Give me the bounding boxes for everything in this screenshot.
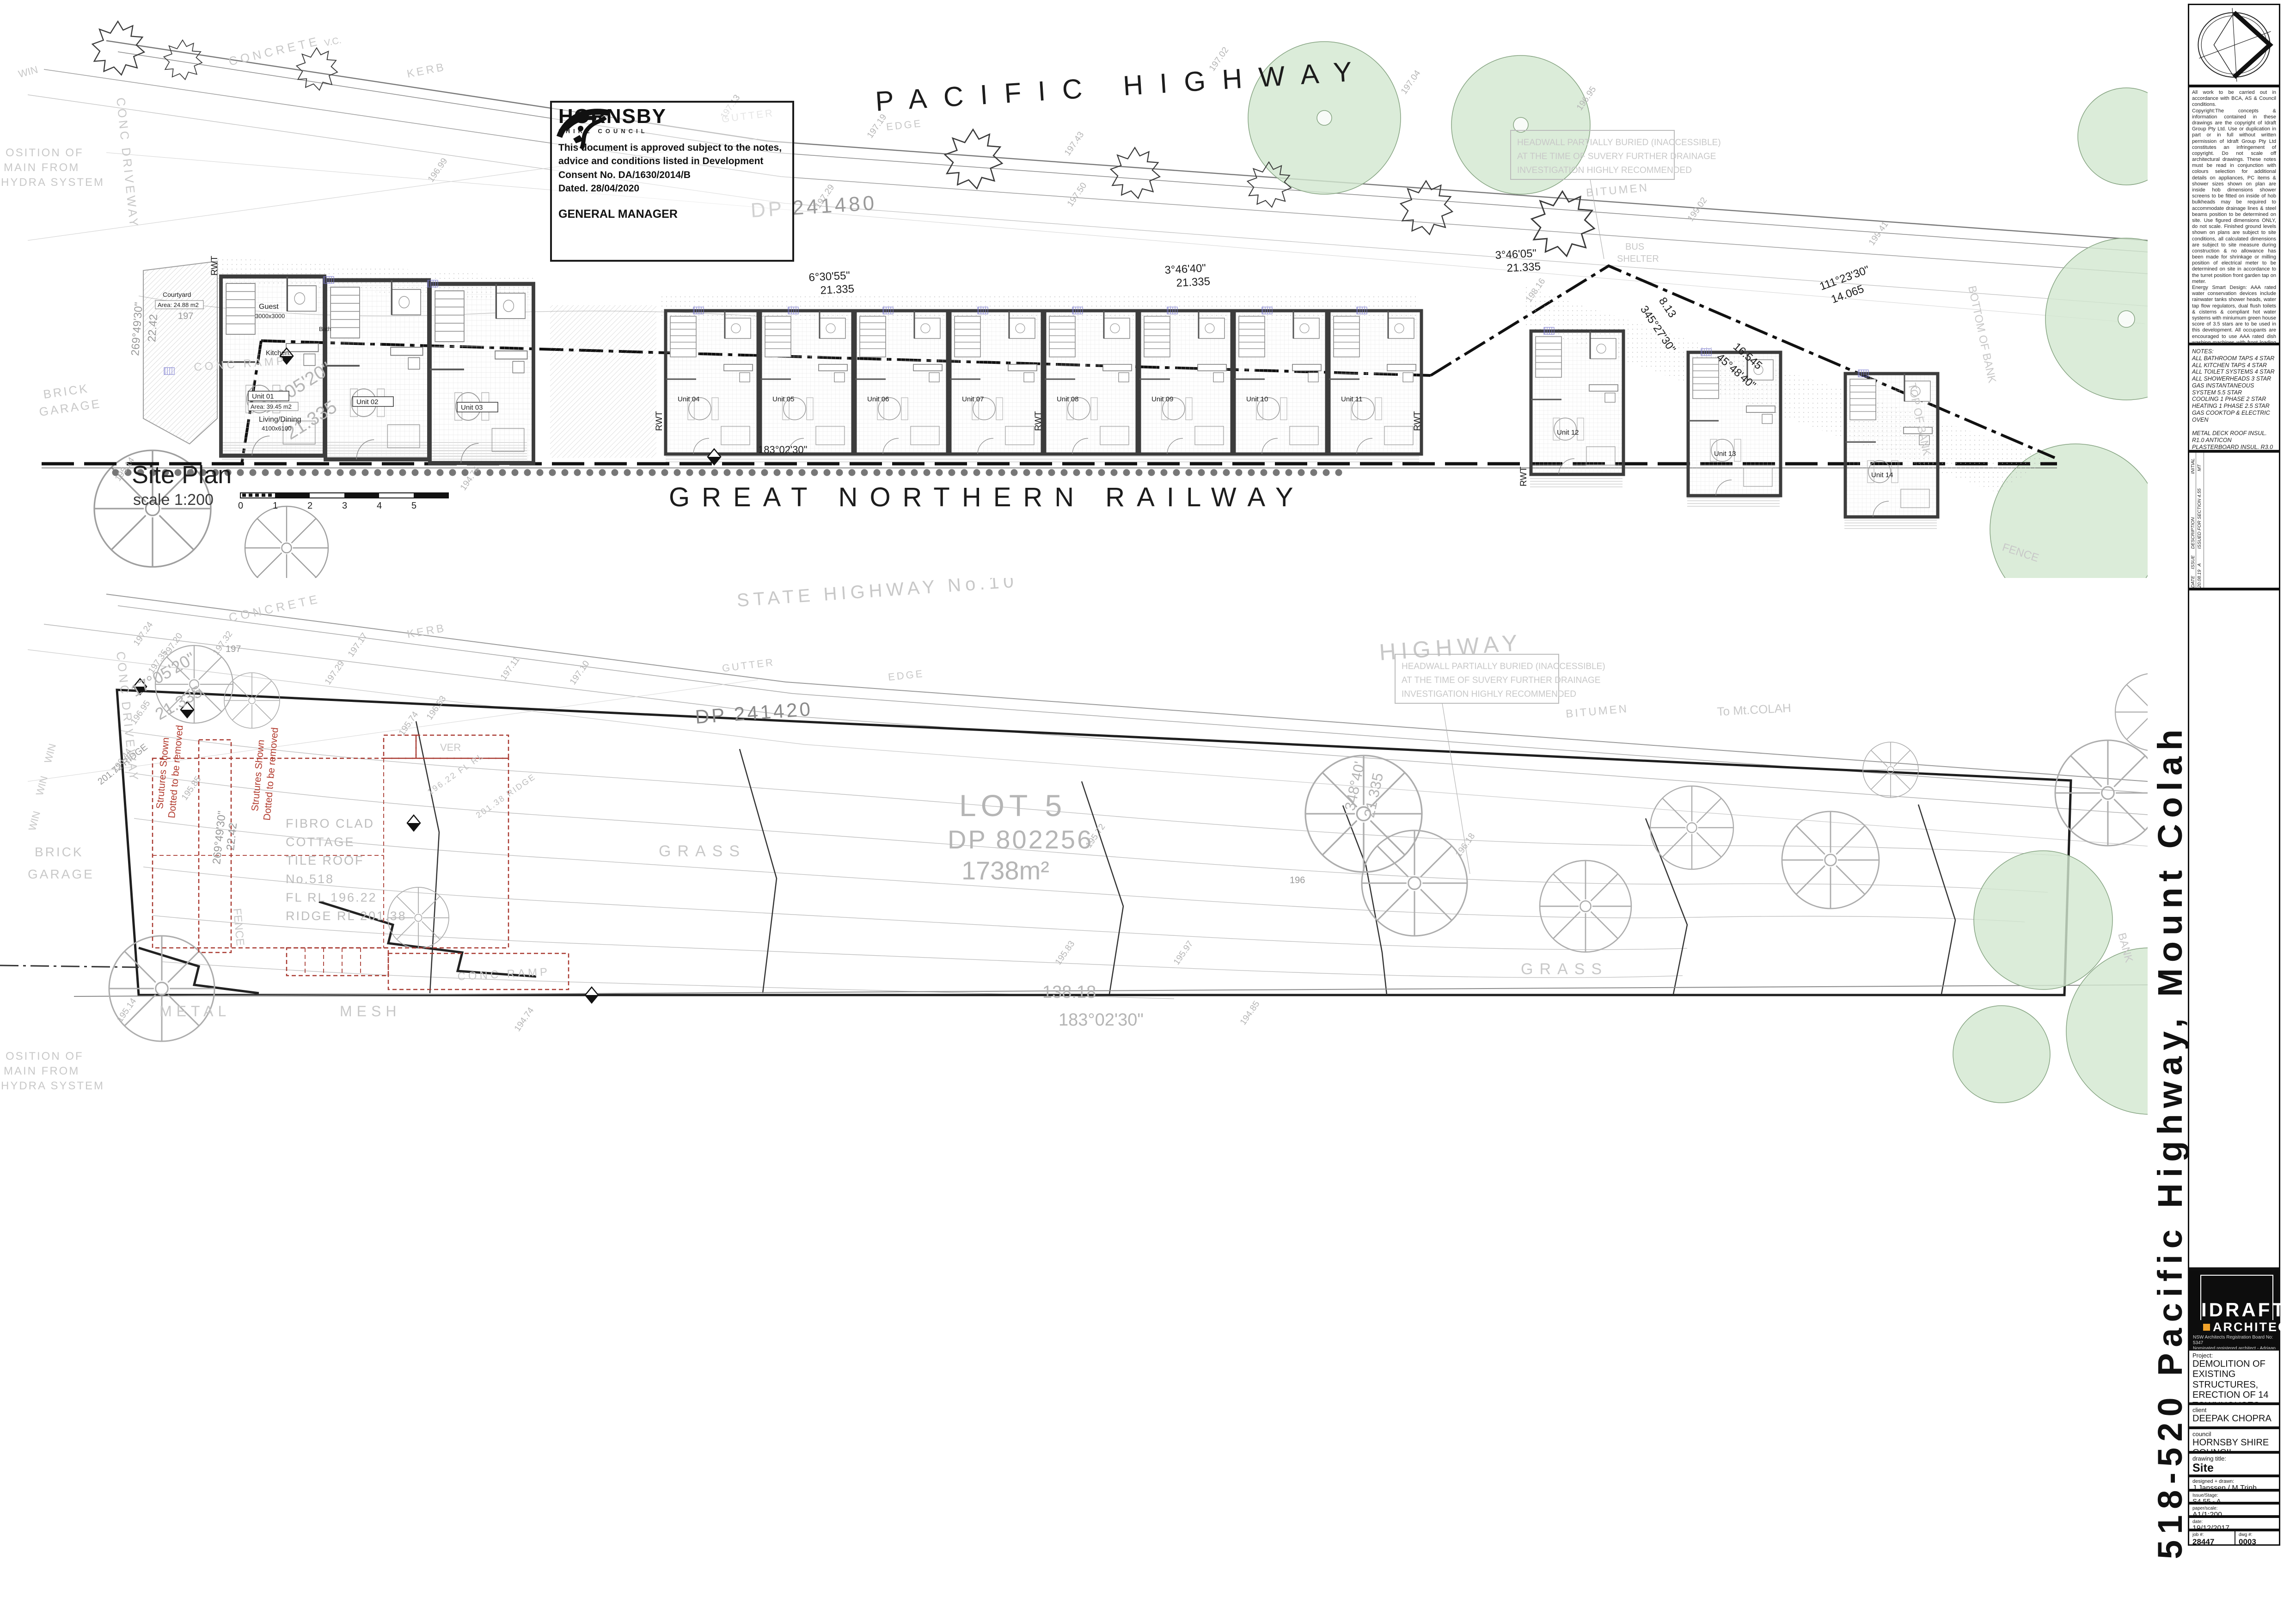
svg-text:183°02'30": 183°02'30" — [758, 444, 807, 455]
svg-text:Unit 14: Unit 14 — [1871, 471, 1893, 479]
svg-text:1: 1 — [273, 501, 278, 511]
svg-text:195.97: 195.97 — [1172, 939, 1195, 967]
svg-text:Courtyard: Courtyard — [163, 291, 191, 298]
rev-value-issue: A — [2197, 563, 2202, 566]
svg-text:INVESTIGATION HIGHLY RECOMMEND: INVESTIGATION HIGHLY RECOMMENDED — [1402, 689, 1576, 699]
svg-text:21.335: 21.335 — [1506, 260, 1541, 275]
svg-text:FIBRO CLAD: FIBRO CLAD — [286, 817, 374, 830]
field-label: dwg #: — [2239, 1532, 2276, 1537]
field-label: client — [2192, 1407, 2276, 1413]
field-job-dwg: job #: 28447 dwg #: 0003 — [2188, 1530, 2280, 1546]
svg-text:197.50: 197.50 — [1065, 181, 1089, 209]
svg-text:199.41: 199.41 — [1867, 220, 1891, 247]
svg-text:195.83: 195.83 — [1053, 939, 1077, 967]
field-label: paper/scale: — [2192, 1506, 2276, 1511]
svg-text:1738m²: 1738m² — [961, 856, 1049, 885]
stamp-signature: GENERAL MANAGER — [558, 208, 786, 221]
logo-square-icon — [2203, 1324, 2210, 1331]
svg-text:BOTTOM OF BANK: BOTTOM OF BANK — [1965, 285, 1998, 384]
firm-name: IDRAFT — [2201, 1299, 2286, 1321]
demolition-plan: STATE HIGHWAY No.10 HIGHWAY To Mt.COLAH … — [0, 578, 2148, 1137]
svg-text:Living/Dining: Living/Dining — [259, 416, 301, 424]
svg-text:3°46'05": 3°46'05" — [1495, 247, 1537, 262]
svg-text:194.85: 194.85 — [1238, 999, 1262, 1027]
svg-text:22.42: 22.42 — [146, 314, 160, 343]
headwall-note: HEADWALL PARTIALLY BURIED (INACCESSIBLE)… — [1395, 654, 1605, 874]
state-highway-label: STATE HIGHWAY No.10 — [736, 578, 1018, 611]
svg-text:2: 2 — [307, 501, 312, 511]
svg-text:197.43: 197.43 — [1063, 130, 1086, 158]
svg-text:BITUMEN: BITUMEN — [1586, 181, 1649, 199]
svg-text:RWT: RWT — [1519, 467, 1529, 486]
svg-text:Unit 01: Unit 01 — [252, 393, 274, 400]
svg-text:CONCRETE: CONCRETE — [227, 34, 321, 68]
plan-scale: scale 1:200 — [133, 491, 214, 509]
firm-name2: ARCHITECTS — [2213, 1320, 2296, 1334]
field-council: council HORNSBY SHIRE COUNCIL — [2188, 1428, 2280, 1452]
svg-text:OSITION OF: OSITION OF — [6, 1050, 84, 1063]
council-approval-stamp: HORNSBY SHIRE COUNCIL This document is a… — [550, 101, 794, 262]
field-value: DEEPAK CHOPRA — [2192, 1413, 2276, 1424]
ratings-notes-box: NOTES: ALL BATHROOM TAPS 4 STAR ALL KITC… — [2188, 344, 2280, 451]
field-dwg: dwg #: 0003 — [2235, 1531, 2279, 1544]
demolition-notes: Strutures Shown Dotted to be removed Str… — [154, 725, 281, 821]
svg-text:21.335: 21.335 — [152, 682, 206, 724]
to-colah-label: To Mt.COLAH — [1717, 701, 1792, 719]
rev-header-initial: INITIAL — [2191, 458, 2196, 474]
svg-text:TILE ROOF: TILE ROOF — [286, 854, 364, 867]
railway-title: GREAT NORTHERN RAILWAY — [669, 482, 1305, 512]
stamp-line: Consent No. DA/1630/2014/B — [558, 168, 786, 182]
svg-text:197.04: 197.04 — [1399, 68, 1423, 96]
svg-text:HYDRA SYSTEM: HYDRA SYSTEM — [1, 1080, 104, 1092]
section-markers — [134, 679, 598, 1003]
svg-text:21.335: 21.335 — [820, 283, 855, 297]
svg-text:Unit 05: Unit 05 — [772, 395, 795, 403]
svg-text:197.17: 197.17 — [346, 631, 370, 659]
svg-text:BRICK: BRICK — [43, 381, 90, 401]
svg-text:3°46'40": 3°46'40" — [1164, 262, 1206, 276]
svg-text:197.11: 197.11 — [499, 655, 522, 682]
svg-text:RWT: RWT — [1413, 411, 1422, 431]
svg-text:SHELTER: SHELTER — [1617, 254, 1659, 264]
svg-text:Unit 08: Unit 08 — [1057, 395, 1079, 403]
field-client: client DEEPAK CHOPRA — [2188, 1404, 2280, 1428]
stamp-line: Dated. 28/04/2020 — [558, 182, 786, 195]
road-lines — [28, 594, 2148, 846]
svg-text:FL RL 196.22: FL RL 196.22 — [286, 891, 377, 904]
svg-text:22.42: 22.42 — [224, 822, 239, 851]
rev-value-initial: MT — [2197, 465, 2202, 471]
svg-text:GRASS: GRASS — [1521, 960, 1608, 978]
contour-lines — [120, 731, 2062, 999]
sheet-address-vertical: 518-520 Pacific Highway, Mount Colah — [2150, 375, 2190, 1559]
svg-text:OSITION OF: OSITION OF — [6, 147, 84, 159]
field-scale: paper/scale: A1/1:200 — [2188, 1503, 2280, 1517]
svg-text:COTTAGE: COTTAGE — [286, 835, 355, 849]
field-label: drawing title: — [2192, 1455, 2276, 1462]
svg-text:RIDGE RL 201.38: RIDGE RL 201.38 — [286, 909, 407, 923]
svg-text:Unit 07: Unit 07 — [962, 395, 984, 403]
svg-text:197.24: 197.24 — [132, 620, 155, 648]
svg-text:196: 196 — [1290, 875, 1305, 885]
svg-text:KERB: KERB — [406, 621, 447, 640]
svg-text:VER: VER — [440, 742, 461, 753]
highway-label: HIGHWAY — [1378, 629, 1523, 665]
revision-divider — [2204, 453, 2204, 588]
svg-text:WIN: WIN — [42, 743, 58, 765]
general-notes-text: All work to be carried out in accordance… — [2189, 87, 2279, 354]
field-label: job #: — [2192, 1532, 2231, 1537]
svg-text:MAIN FROM: MAIN FROM — [4, 161, 80, 174]
svg-text:Guest: Guest — [259, 303, 279, 311]
north-arrow-icon — [2189, 5, 2279, 85]
svg-text:BUS: BUS — [1625, 242, 1644, 252]
svg-text:GRASS: GRASS — [659, 842, 746, 860]
svg-text:Kitchen.: Kitchen. — [266, 349, 291, 357]
cottage-text: FIBRO CLAD COTTAGE TILE ROOF No.518 FL R… — [286, 751, 538, 923]
svg-text:GUTTER: GUTTER — [722, 656, 776, 674]
svg-text:AT THE TIME OF SUVERY FURTHER: AT THE TIME OF SUVERY FURTHER DRAINAGE — [1402, 676, 1600, 685]
svg-text:Unit 09: Unit 09 — [1151, 395, 1174, 403]
svg-text:197.29: 197.29 — [323, 659, 347, 687]
svg-text:BRICK: BRICK — [35, 845, 84, 859]
north-arrow-box — [2188, 4, 2280, 86]
svg-text:GARAGE: GARAGE — [28, 867, 94, 881]
svg-text:21.335: 21.335 — [1176, 275, 1211, 289]
svg-text:FENCE: FENCE — [231, 908, 246, 946]
rev-header-description: DESCRIPTION — [2191, 517, 2196, 549]
svg-text:Area: 39.45 m2: Area: 39.45 m2 — [251, 403, 292, 410]
svg-text:MESH: MESH — [340, 1003, 401, 1020]
svg-text:LOT 5: LOT 5 — [959, 788, 1066, 823]
svg-text:197.10: 197.10 — [568, 659, 592, 687]
svg-text:METAL: METAL — [159, 1003, 231, 1020]
svg-text:WIN: WIN — [34, 775, 50, 797]
svg-text:EDGE: EDGE — [886, 117, 923, 133]
svg-text:Unit 12: Unit 12 — [1557, 429, 1579, 436]
rev-header-issue: ISSUE — [2191, 555, 2196, 569]
svg-text:195.14: 195.14 — [115, 996, 139, 1024]
svg-text:BITUMEN: BITUMEN — [1565, 702, 1629, 720]
general-notes-box: All work to be carried out in accordance… — [2188, 86, 2280, 344]
svg-text:DP 802256: DP 802256 — [948, 825, 1093, 854]
field-label: Project: — [2192, 1352, 2276, 1359]
svg-text:RWT: RWT — [1034, 411, 1043, 431]
scale-bar: 0 1 2 3 4 5 — [238, 493, 448, 511]
svg-text:3000x3000: 3000x3000 — [255, 313, 285, 319]
svg-text:AT THE TIME OF SUVERY FURTHER: AT THE TIME OF SUVERY FURTHER DRAINAGE — [1517, 152, 1716, 161]
revision-table: INITIAL MT DESCRIPTION ISSUED FOR SECTIO… — [2188, 451, 2280, 589]
svg-text:Unit 02: Unit 02 — [356, 398, 379, 406]
rev-value-date: 20.08.19 — [2197, 570, 2202, 588]
svg-text:197: 197 — [226, 644, 241, 654]
svg-text:WIN: WIN — [26, 810, 43, 832]
svg-text:HYDRA SYSTEM: HYDRA SYSTEM — [1, 176, 104, 189]
svg-text:CONC DRIVEWAY: CONC DRIVEWAY — [114, 97, 141, 229]
site-plan: PACIFIC HIGHWAY GREAT NORTHERN RAILWAY D… — [0, 0, 2148, 578]
field-drawing-title: drawing title: Site Plan/Demolition Plan — [2188, 1452, 2280, 1476]
svg-text:V.C.: V.C. — [324, 35, 343, 49]
svg-text:RWT: RWT — [210, 256, 220, 276]
revision-divider — [2196, 453, 2196, 588]
svg-text:MAIN FROM: MAIN FROM — [4, 1065, 80, 1077]
svg-text:Unit 10: Unit 10 — [1246, 395, 1268, 403]
svg-text:EDGE: EDGE — [888, 668, 925, 683]
svg-text:WIN: WIN — [17, 64, 39, 80]
svg-text:6°30'55": 6°30'55" — [808, 269, 851, 284]
svg-text:HEADWALL PARTIALLY BURIED (INA: HEADWALL PARTIALLY BURIED (INACCESSIBLE) — [1517, 138, 1721, 147]
svg-text:INVESTIGATION HIGHLY RECOMMEND: INVESTIGATION HIGHLY RECOMMENDED — [1517, 166, 1692, 175]
drawing-sheet: PACIFIC HIGHWAY GREAT NORTHERN RAILWAY D… — [0, 0, 2296, 1622]
rev-value-description: ISSUED FOR SECTION 4.55 — [2197, 488, 2202, 549]
plan-title: Site Plan — [132, 461, 232, 489]
svg-text:Unit 06: Unit 06 — [867, 395, 889, 403]
svg-text:Bath: Bath — [319, 326, 331, 332]
field-project: Project: DEMOLITION OF EXISTING STRUCTUR… — [2188, 1349, 2280, 1404]
hornsby-logo-icon — [552, 103, 626, 151]
svg-text:Area: 24.88 m2: Area: 24.88 m2 — [158, 301, 199, 308]
svg-text:196.99: 196.99 — [426, 156, 450, 184]
dp-label: DP 241420 — [694, 698, 813, 728]
architect-logo-box: IDRAFT ARCHITECTS NSW Architects Registr… — [2188, 1269, 2280, 1349]
svg-text:3: 3 — [342, 501, 347, 511]
svg-text:183°02'30": 183°02'30" — [1059, 1010, 1144, 1030]
field-designed: designed + drawn: J.Janssen / M.Trinh — [2188, 1476, 2280, 1490]
field-label: designed + drawn: — [2192, 1479, 2276, 1484]
svg-text:5: 5 — [411, 501, 416, 511]
tree-canopies — [1953, 851, 2148, 1114]
field-job: job #: 28447 — [2189, 1531, 2235, 1544]
svg-text:269°49'30": 269°49'30" — [129, 302, 145, 356]
svg-text:CONCRETE: CONCRETE — [227, 592, 322, 625]
svg-text:CONC RAMP: CONC RAMP — [457, 966, 551, 983]
field-value: 28447 — [2192, 1537, 2231, 1547]
svg-text:194.74: 194.74 — [513, 1006, 536, 1033]
svg-text:8.13: 8.13 — [1656, 295, 1679, 320]
svg-text:Unit 03: Unit 03 — [461, 404, 483, 412]
field-label: council — [2192, 1431, 2276, 1438]
svg-text:195.85: 195.85 — [180, 774, 203, 802]
svg-text:No.518: No.518 — [286, 872, 334, 886]
svg-text:196.18: 196.18 — [1454, 831, 1477, 859]
field-value: 0003 — [2239, 1537, 2276, 1547]
svg-text:194.74: 194.74 — [459, 465, 482, 492]
svg-text:4100x6100: 4100x6100 — [262, 425, 291, 432]
svg-text:4: 4 — [377, 501, 382, 511]
blank-panel — [2188, 589, 2280, 1269]
field-issue: Issue/Stage: S4.55 - A — [2188, 1490, 2280, 1503]
svg-text:0: 0 — [238, 501, 243, 511]
stamp-line: advice and conditions listed in Developm… — [558, 154, 786, 168]
survey-trees — [109, 645, 2148, 1041]
svg-text:Unit 13: Unit 13 — [1714, 450, 1736, 458]
svg-text:KERB: KERB — [406, 61, 447, 80]
svg-text:Unit 11: Unit 11 — [1341, 395, 1362, 403]
lot-text: LOT 5 DP 802256 1738m² — [948, 788, 1093, 885]
svg-text:RWT: RWT — [655, 411, 664, 431]
field-date: date: 19/12/2017 — [2188, 1517, 2280, 1530]
rev-header-date: DATE — [2191, 576, 2196, 588]
svg-text:Unit 04: Unit 04 — [678, 395, 700, 403]
svg-text:138.18: 138.18 — [1042, 983, 1096, 1002]
field-label: date: — [2192, 1519, 2276, 1524]
svg-text:197: 197 — [178, 311, 193, 321]
svg-text:HEADWALL PARTIALLY BURIED (INA: HEADWALL PARTIALLY BURIED (INACCESSIBLE) — [1402, 662, 1605, 671]
